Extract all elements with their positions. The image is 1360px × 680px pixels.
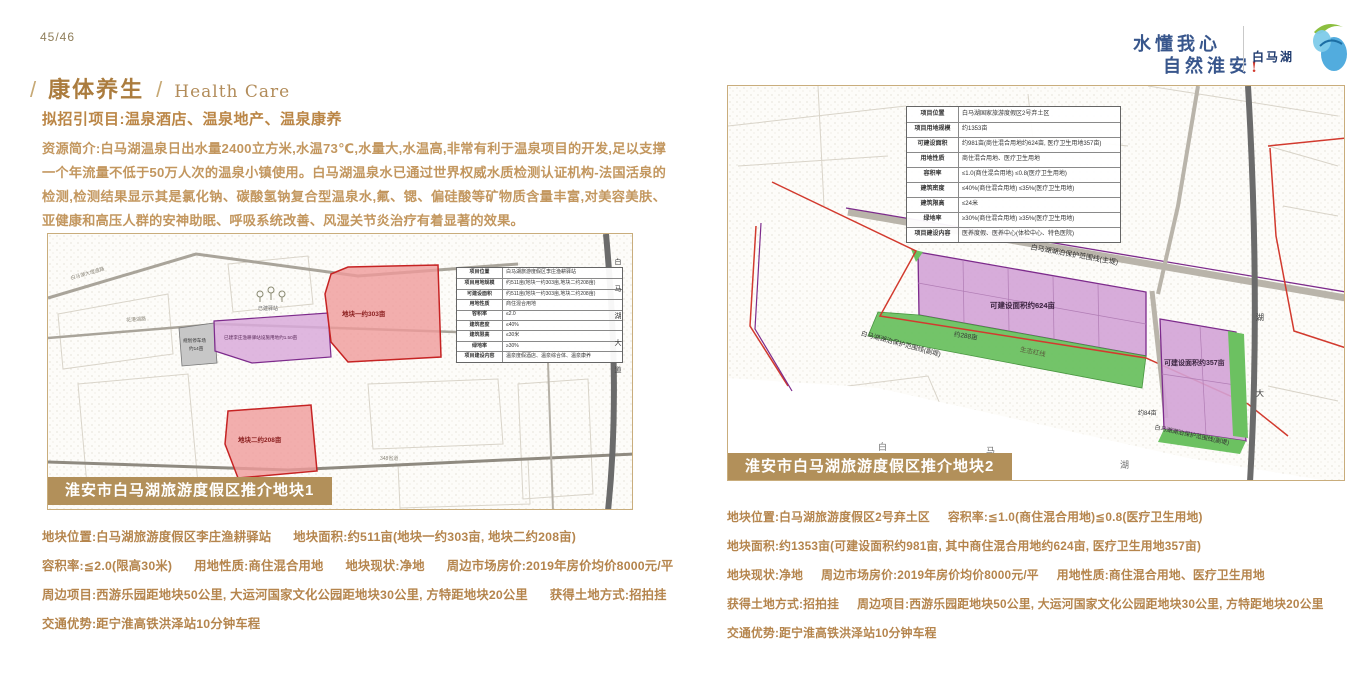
detail-value: 白马湖旅游度假区2号弃土区 xyxy=(779,510,930,524)
cell-key: 可建设面积 xyxy=(457,290,503,299)
map2-buildable-357-label: 可建设面积约357亩 xyxy=(1164,358,1225,368)
detail-value: 净地 xyxy=(779,568,803,582)
map1-parcel-a-label: 地块一约303亩 xyxy=(342,308,385,318)
cell-value: ≤40%(商住混合用地) ≤35%(医疗卫生用地) xyxy=(959,183,1120,197)
table-row: 容积率≤2.0 xyxy=(457,310,622,320)
detail-seg: 用地性质:商住混合用地 xyxy=(194,557,323,576)
slash-right: / xyxy=(156,77,162,103)
cell-key: 项目用地规模 xyxy=(457,279,503,288)
table-row: 项目用地规模约511亩(地块一约303亩,地块二约208亩) xyxy=(457,278,622,288)
cell-value: ≤1.0(商住混合用地) ≤0.8(医疗卫生用地) xyxy=(959,168,1120,182)
cell-key: 项目建设内容 xyxy=(907,228,959,242)
detail-value: ≦2.0(限高30米) xyxy=(84,559,172,573)
detail-value: 商住混合用地 xyxy=(248,559,323,573)
parcel1-caption: 淮安市白马湖旅游度假区推介地块1 xyxy=(47,477,332,505)
detail-value: 距宁淮高铁洪泽站10分钟车程 xyxy=(779,626,937,640)
baimahu-logo: 白马湖 xyxy=(1252,14,1352,78)
slogan-line-2-text: 自然淮安 xyxy=(1163,56,1251,77)
section-title-zh: 康体养生 xyxy=(48,72,144,104)
map1-built-strip-label: 已建李庄渔耕驿站设施用地约1.50亩 xyxy=(224,335,297,341)
detail-label: 容积率: xyxy=(948,510,988,524)
detail-seg: 交通优势:距宁淮高铁洪泽站10分钟车程 xyxy=(727,624,937,643)
detail-value: 2019年房价均价8000元/平 xyxy=(526,559,673,573)
detail-label: 地块面积: xyxy=(293,530,347,544)
detail-value: 距宁淮高铁洪泽站10分钟车程 xyxy=(96,617,260,631)
section-heading: / 康体养生 / Health Care xyxy=(30,72,290,104)
table-row: 绿地率≥30%(商住混合用地) ≥35%(医疗卫生用地) xyxy=(907,212,1120,227)
cell-value: 约511亩(地块一约303亩,地块二约208亩) xyxy=(503,279,622,288)
table-row: 可建设面积约511亩(地块一约303亩,地块二约208亩) xyxy=(457,289,622,299)
map1-parking-label-1: 规划停车场 xyxy=(183,338,206,344)
detail-label: 周边市场房价: xyxy=(821,568,897,582)
brochure-page: 45/46 水懂我心 自然淮安! 白马湖 / 康体养生 / Health Car… xyxy=(0,0,1360,680)
detail-value: 招拍挂 xyxy=(629,588,667,602)
map2-road-char-hu: 湖 xyxy=(1256,312,1264,323)
detail-line: 交通优势:距宁淮高铁洪泽站10分钟车程 xyxy=(42,615,732,634)
detail-value: ≦1.0(商住混合用地)≦0.8(医疗卫生用地) xyxy=(988,510,1203,524)
map1-vertical-road-label: 白马湖大道 xyxy=(612,258,622,393)
detail-seg: 地块现状:净地 xyxy=(727,566,803,585)
table-row: 项目建设内容医养度假、医养中心(体检中心、特色医院) xyxy=(907,227,1120,242)
detail-label: 用地性质: xyxy=(1057,568,1109,582)
detail-value: 约1353亩(可建设面积约981亩, 其中商住混合用地约624亩, 医疗卫生用地… xyxy=(779,539,1201,553)
table-row: 建筑限高≤24米 xyxy=(907,197,1120,212)
detail-label: 交通优势: xyxy=(42,617,96,631)
map1-parking-parcel xyxy=(179,323,217,366)
cell-key: 绿地率 xyxy=(457,342,503,351)
parcel1-map-table: 项目位置白马湖旅游度假区李庄渔耕驿站 项目用地规模约511亩(地块一约303亩,… xyxy=(456,267,623,363)
detail-label: 获得土地方式: xyxy=(727,597,803,611)
parcel2-map: 项目位置白马湖国家旅游度假区2号弃土区 项目用地规模约1353亩 可建设面积约9… xyxy=(727,85,1345,481)
cell-value: 约511亩(地块一约303亩,地块二约208亩) xyxy=(503,290,622,299)
table-row: 建筑密度≤40% xyxy=(457,320,622,330)
detail-label: 获得土地方式: xyxy=(550,588,629,602)
detail-value: 西游乐园距地块50公里, 大运河国家文化公园距地块30公里, 方特距地块20公里 xyxy=(96,588,528,602)
page-number: 45/46 xyxy=(40,30,75,44)
cell-key: 绿地率 xyxy=(907,213,959,227)
parcel1-details: 地块位置:白马湖旅游度假区李庄渔耕驿站 地块面积:约511亩(地块一约303亩,… xyxy=(42,528,732,644)
detail-seg: 地块现状:净地 xyxy=(345,557,424,576)
cell-key: 可建设面积 xyxy=(907,138,959,152)
cell-key: 用地性质 xyxy=(907,153,959,167)
cell-key: 容积率 xyxy=(907,168,959,182)
cell-value: 温泉度假酒店、温泉综合体、温泉康养 xyxy=(503,352,622,361)
invest-projects-line: 拟招引项目:温泉酒店、温泉地产、温泉康养 xyxy=(42,108,342,129)
detail-seg: 地块面积:约1353亩(可建设面积约981亩, 其中商住混合用地约624亩, 医… xyxy=(727,537,1201,556)
detail-label: 交通优势: xyxy=(727,626,779,640)
detail-label: 周边项目: xyxy=(42,588,96,602)
detail-seg: 交通优势:距宁淮高铁洪泽站10分钟车程 xyxy=(42,615,260,634)
detail-label: 地块现状: xyxy=(727,568,779,582)
cell-key: 建筑密度 xyxy=(457,321,503,330)
table-row: 建筑限高≤30米 xyxy=(457,330,622,340)
detail-value: 招拍挂 xyxy=(803,597,839,611)
detail-line: 交通优势:距宁淮高铁洪泽站10分钟车程 xyxy=(727,624,1349,643)
detail-label: 地块现状: xyxy=(345,559,399,573)
detail-value: 净地 xyxy=(400,559,425,573)
table-row: 容积率≤1.0(商住混合用地) ≤0.8(医疗卫生用地) xyxy=(907,167,1120,182)
detail-seg: 地块位置:白马湖旅游度假区2号弃土区 xyxy=(727,508,930,527)
cell-value: 医养度假、医养中心(体检中心、特色医院) xyxy=(959,228,1120,242)
detail-label: 周边项目: xyxy=(857,597,909,611)
cell-value: ≤2.0 xyxy=(503,311,622,320)
cell-key: 容积率 xyxy=(457,311,503,320)
table-row: 项目位置白马湖国家旅游度假区2号弃土区 xyxy=(907,107,1120,122)
detail-value: 西游乐园距地块50公里, 大运河国家文化公园距地块30公里, 方特距地块20公里 xyxy=(909,597,1323,611)
cell-value: ≤30米 xyxy=(503,331,622,340)
resource-intro-paragraph: 资源简介:白马湖温泉日出水量2400立方米,水温73℃,水量大,水温高,非常有利… xyxy=(42,137,666,233)
cell-value: 白马湖国家旅游度假区2号弃土区 xyxy=(959,107,1120,122)
logo-text: 白马湖 xyxy=(1252,48,1294,65)
cell-key: 建筑限高 xyxy=(907,198,959,212)
cell-value: 约981亩(商住混合用地约624亩, 医疗卫生用地357亩) xyxy=(959,138,1120,152)
detail-line: 地块面积:约1353亩(可建设面积约981亩, 其中商住混合用地约624亩, 医… xyxy=(727,537,1349,556)
cell-key: 建筑限高 xyxy=(457,331,503,340)
detail-seg: 周边项目:西游乐园距地块50公里, 大运河国家文化公园距地块30公里, 方特距地… xyxy=(857,595,1324,614)
detail-line: 获得土地方式:招拍挂 周边项目:西游乐园距地块50公里, 大运河国家文化公园距地… xyxy=(727,595,1349,614)
cell-key: 项目用地规模 xyxy=(907,123,959,137)
cell-value: 商住混合用地、医疗卫生用地 xyxy=(959,153,1120,167)
detail-value: 商住混合用地、医疗卫生用地 xyxy=(1109,568,1265,582)
detail-value: 白马湖旅游度假区李庄渔耕驿站 xyxy=(96,530,271,544)
map1-parking-label-2: 约14亩 xyxy=(189,346,203,352)
map2-buildable-624-label: 可建设面积约624亩 xyxy=(990,300,1055,311)
detail-seg: 周边项目:西游乐园距地块50公里, 大运河国家文化公园距地块30公里, 方特距地… xyxy=(42,586,528,605)
slash-left: / xyxy=(30,77,36,103)
map1-parcel-b-label: 地块二约208亩 xyxy=(238,434,281,444)
cell-value: 约1353亩 xyxy=(959,123,1120,137)
table-row: 用地性质商住混合用地 xyxy=(457,299,622,309)
detail-label: 容积率: xyxy=(42,559,84,573)
detail-seg: 周边市场房价:2019年房价均价8000元/平 xyxy=(447,557,674,576)
detail-label: 地块面积: xyxy=(727,539,779,553)
header-divider xyxy=(1243,26,1244,72)
detail-label: 地块位置: xyxy=(42,530,96,544)
cell-key: 建筑密度 xyxy=(907,183,959,197)
detail-value: 约511亩(地块一约303亩, 地块二约208亩) xyxy=(348,530,576,544)
map2-area-84-label: 约84亩 xyxy=(1138,408,1157,417)
cell-value: 商住混合用地 xyxy=(503,300,622,309)
parcel2-caption: 淮安市白马湖旅游度假区推介地块2 xyxy=(727,453,1012,481)
detail-label: 用地性质: xyxy=(194,559,248,573)
cell-value: ≥30% xyxy=(503,342,622,351)
detail-line: 地块现状:净地 周边市场房价:2019年房价均价8000元/平 用地性质:商住混… xyxy=(727,566,1349,585)
detail-label: 地块位置: xyxy=(727,510,779,524)
detail-seg: 容积率:≦2.0(限高30米) xyxy=(42,557,172,576)
cell-key: 项目位置 xyxy=(907,107,959,122)
map2-road-char-da: 大 xyxy=(1256,388,1264,399)
detail-seg: 用地性质:商住混合用地、医疗卫生用地 xyxy=(1057,566,1265,585)
parcel2-map-table: 项目位置白马湖国家旅游度假区2号弃土区 项目用地规模约1353亩 可建设面积约9… xyxy=(906,106,1121,243)
cell-value: ≥30%(商住混合用地) ≥35%(医疗卫生用地) xyxy=(959,213,1120,227)
table-row: 项目位置白马湖旅游度假区李庄渔耕驿站 xyxy=(457,268,622,278)
cell-value: ≤24米 xyxy=(959,198,1120,212)
detail-seg: 地块位置:白马湖旅游度假区李庄渔耕驿站 xyxy=(42,528,271,547)
map2-lake-char-bai: 白 xyxy=(878,440,887,453)
cell-value: 白马湖旅游度假区李庄渔耕驿站 xyxy=(503,268,622,278)
map1-built-station-label: 已建驿站 xyxy=(258,305,278,312)
water-drop-logo-icon xyxy=(1252,14,1352,78)
detail-seg: 周边市场房价:2019年房价均价8000元/平 xyxy=(821,566,1039,585)
parcel2-details: 地块位置:白马湖旅游度假区2号弃土区 容积率:≦1.0(商住混合用地)≦0.8(… xyxy=(727,508,1349,653)
detail-seg: 容积率:≦1.0(商住混合用地)≦0.8(医疗卫生用地) xyxy=(948,508,1203,527)
detail-seg: 获得土地方式:招拍挂 xyxy=(550,586,667,605)
detail-value: 2019年房价均价8000元/平 xyxy=(897,568,1039,582)
detail-line: 周边项目:西游乐园距地块50公里, 大运河国家文化公园距地块30公里, 方特距地… xyxy=(42,586,732,605)
section-title-en: Health Care xyxy=(174,82,290,102)
map1-road-mid-label: 花港湖路 xyxy=(126,315,146,323)
cell-key: 用地性质 xyxy=(457,300,503,309)
parcel1-map: 项目位置白马湖旅游度假区李庄渔耕驿站 项目用地规模约511亩(地块一约303亩,… xyxy=(47,233,633,510)
table-row: 用地性质商住混合用地、医疗卫生用地 xyxy=(907,152,1120,167)
detail-line: 容积率:≦2.0(限高30米) 用地性质:商住混合用地 地块现状:净地 周边市场… xyxy=(42,557,732,576)
map1-road-348-label: 348省道 xyxy=(380,455,398,462)
table-row: 可建设面积约981亩(商住混合用地约624亩, 医疗卫生用地357亩) xyxy=(907,137,1120,152)
detail-line: 地块位置:白马湖旅游度假区2号弃土区 容积率:≦1.0(商住混合用地)≦0.8(… xyxy=(727,508,1349,527)
cell-key: 项目位置 xyxy=(457,268,503,278)
table-row: 项目建设内容温泉度假酒店、温泉综合体、温泉康养 xyxy=(457,351,622,361)
table-row: 项目用地规模约1353亩 xyxy=(907,122,1120,137)
detail-seg: 地块面积:约511亩(地块一约303亩, 地块二约208亩) xyxy=(293,528,576,547)
detail-line: 地块位置:白马湖旅游度假区李庄渔耕驿站 地块面积:约511亩(地块一约303亩,… xyxy=(42,528,732,547)
table-row: 建筑密度≤40%(商住混合用地) ≤35%(医疗卫生用地) xyxy=(907,182,1120,197)
detail-label: 周边市场房价: xyxy=(447,559,526,573)
cell-value: ≤40% xyxy=(503,321,622,330)
map2-lake-char-hu: 湖 xyxy=(1120,458,1129,471)
cell-key: 项目建设内容 xyxy=(457,352,503,361)
table-row: 绿地率≥30% xyxy=(457,341,622,351)
detail-seg: 获得土地方式:招拍挂 xyxy=(727,595,839,614)
